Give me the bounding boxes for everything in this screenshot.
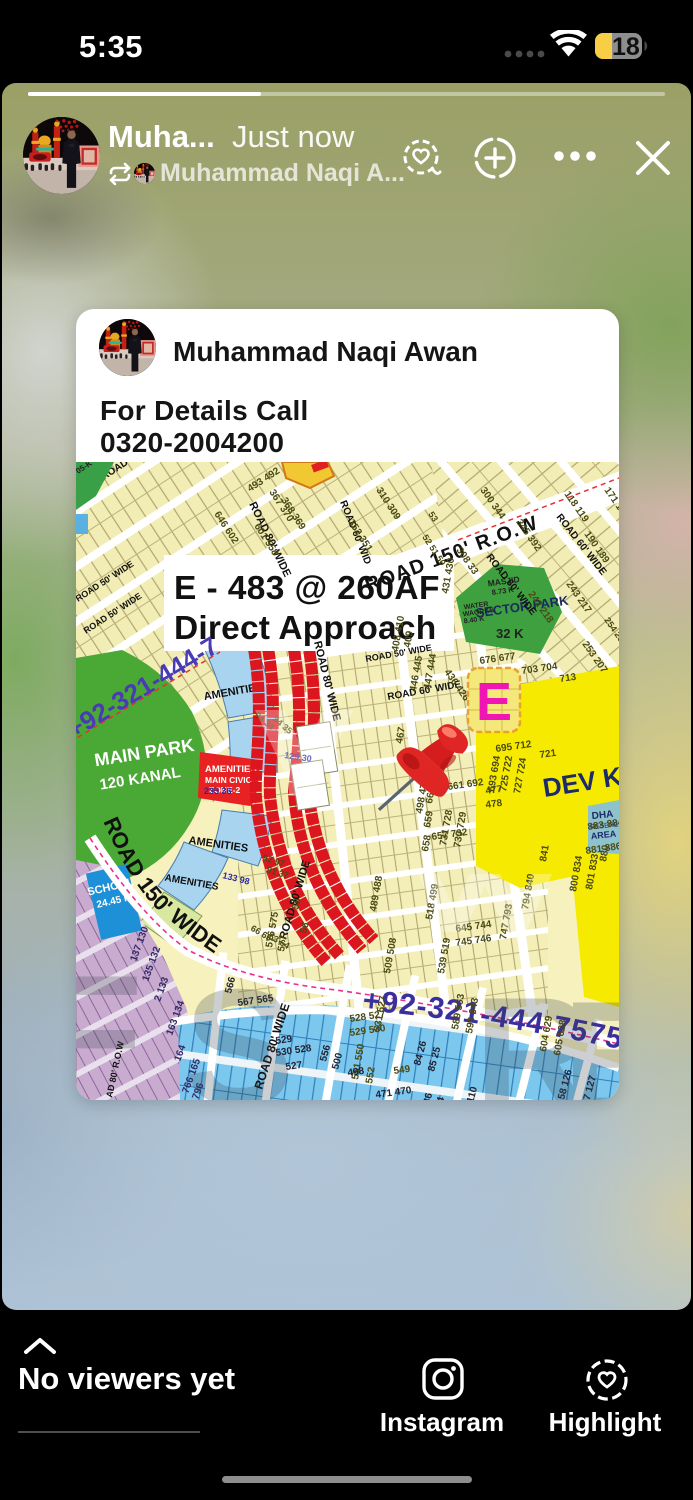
svg-text:32 K: 32 K: [496, 626, 524, 641]
svg-text:F: F: [76, 941, 143, 1100]
svg-text:AMENITIES: AMENITIES: [205, 764, 257, 775]
svg-text:235 36: 235 36: [204, 786, 232, 796]
svg-text:S: S: [184, 955, 294, 1100]
svg-text:E: E: [476, 672, 512, 732]
svg-text:MAIN CIVIC: MAIN CIVIC: [205, 775, 252, 785]
svg-text:E: E: [562, 967, 619, 1100]
svg-text:18: 18: [612, 33, 640, 61]
